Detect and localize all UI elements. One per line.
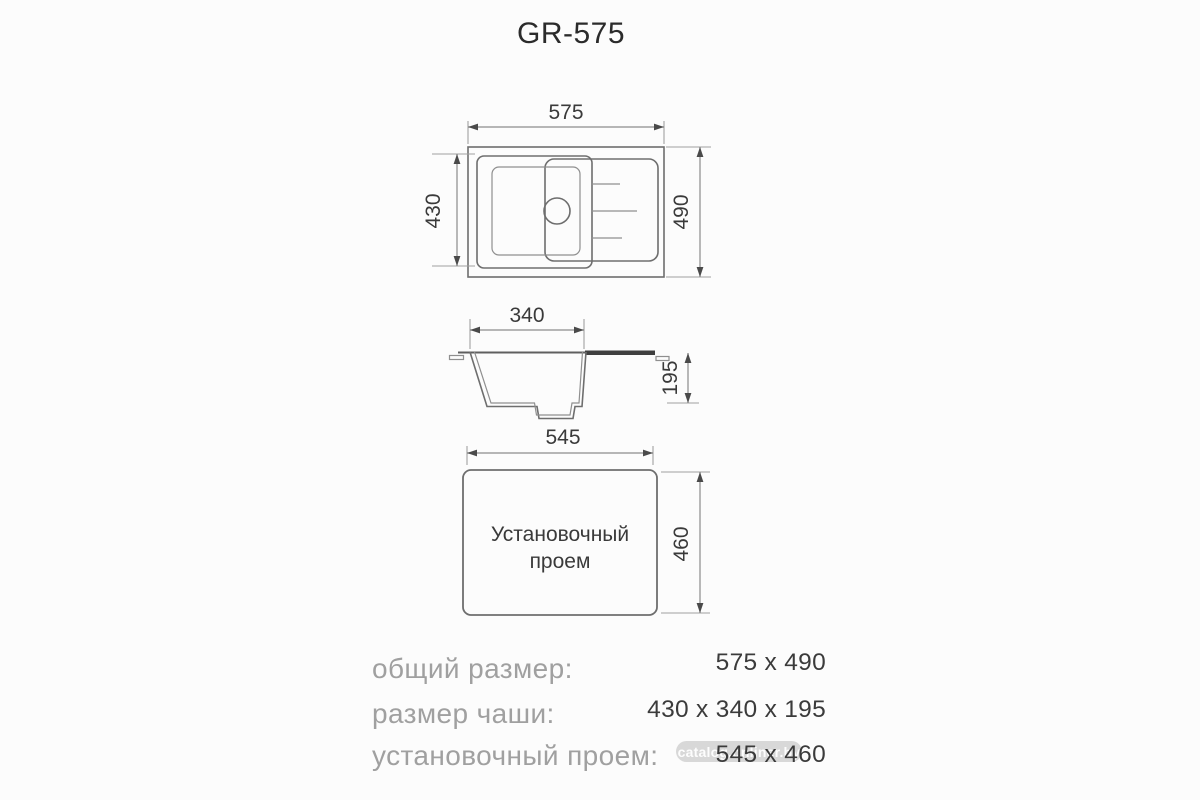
dim-label-430: 430 bbox=[422, 193, 445, 228]
dim-545: 545 bbox=[467, 426, 653, 465]
section-view-drawing: 340 195 bbox=[450, 304, 700, 419]
right-mounting-clip bbox=[656, 357, 669, 361]
top-view-drawing: 575 430 490 bbox=[422, 101, 711, 277]
catalog-diagram-page: GR-575 575 bbox=[0, 0, 1200, 800]
drainer-area-rect bbox=[545, 159, 658, 261]
bowl-section-inner-wall bbox=[475, 352, 583, 415]
dim-575: 575 bbox=[468, 101, 664, 144]
spec-value-bowl-size: 430 x 340 x 195 bbox=[647, 696, 826, 724]
dim-340: 340 bbox=[470, 304, 584, 349]
dim-label-460: 460 bbox=[670, 526, 693, 561]
left-mounting-clip bbox=[450, 356, 464, 360]
dim-label-575: 575 bbox=[548, 101, 583, 124]
spec-label-bowl-size: размер чаши: bbox=[372, 698, 555, 730]
spec-label-overall-size: общий размер: bbox=[372, 653, 573, 685]
install-opening-drawing: 545 Установочный проем 460 bbox=[463, 426, 710, 615]
dim-195: 195 bbox=[659, 353, 699, 403]
dim-430: 430 bbox=[422, 154, 475, 266]
dim-label-490: 490 bbox=[670, 194, 693, 229]
dim-label-545: 545 bbox=[545, 426, 580, 449]
sink-technical-drawing: 575 430 490 bbox=[0, 0, 1200, 640]
spec-value-install-opening: 545 x 460 bbox=[716, 741, 826, 769]
dim-490: 490 bbox=[666, 147, 711, 277]
spec-label-install-opening: установочный проем: bbox=[372, 740, 658, 772]
drainer-edge-bar bbox=[585, 351, 655, 356]
spec-value-overall-size: 575 x 490 bbox=[716, 649, 826, 677]
dim-460: 460 bbox=[661, 472, 710, 613]
install-caption-line2: проем bbox=[530, 550, 591, 573]
dim-label-340: 340 bbox=[509, 304, 544, 327]
dim-label-195: 195 bbox=[659, 360, 682, 395]
install-caption-line1: Установочный bbox=[491, 523, 629, 546]
bowl-section-outer-wall bbox=[470, 352, 586, 419]
